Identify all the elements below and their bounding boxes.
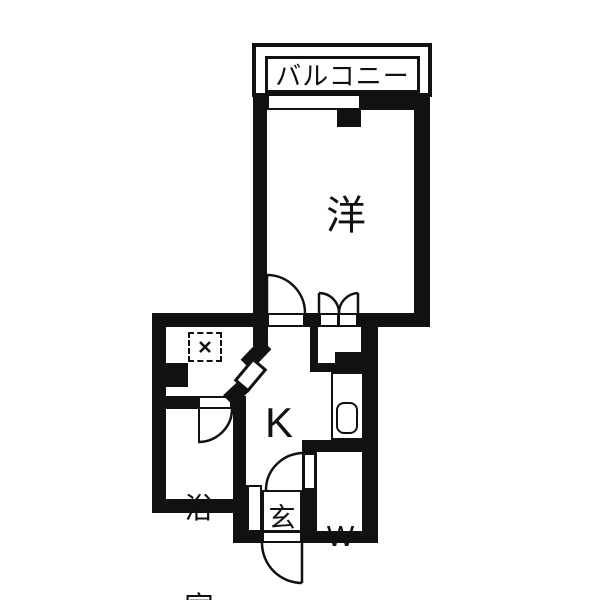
closet-door-arc bbox=[339, 293, 358, 313]
kitchen-label: K bbox=[249, 399, 309, 447]
door-swing-overlay bbox=[0, 0, 600, 600]
diagonal-door-leaf bbox=[236, 360, 266, 391]
bath-label: 浴 室 bbox=[181, 427, 217, 600]
wc-door-arc bbox=[266, 453, 303, 490]
door-arc bbox=[267, 275, 305, 313]
entrance-door-arc bbox=[262, 543, 302, 583]
bath-label-char: 室 bbox=[181, 592, 217, 600]
washing-machine-cross-icon bbox=[200, 342, 210, 352]
bath-label-char: 浴 bbox=[181, 493, 217, 526]
floor-plan: バルコニー 洋 K 浴 室 玄 W C bbox=[0, 0, 600, 600]
western-room-label: 洋 bbox=[316, 183, 376, 241]
closet-door-arc bbox=[319, 293, 339, 313]
entrance-label: 玄 bbox=[264, 496, 300, 535]
wc-label-char: W bbox=[322, 521, 359, 553]
wc-label: W C bbox=[322, 457, 359, 600]
